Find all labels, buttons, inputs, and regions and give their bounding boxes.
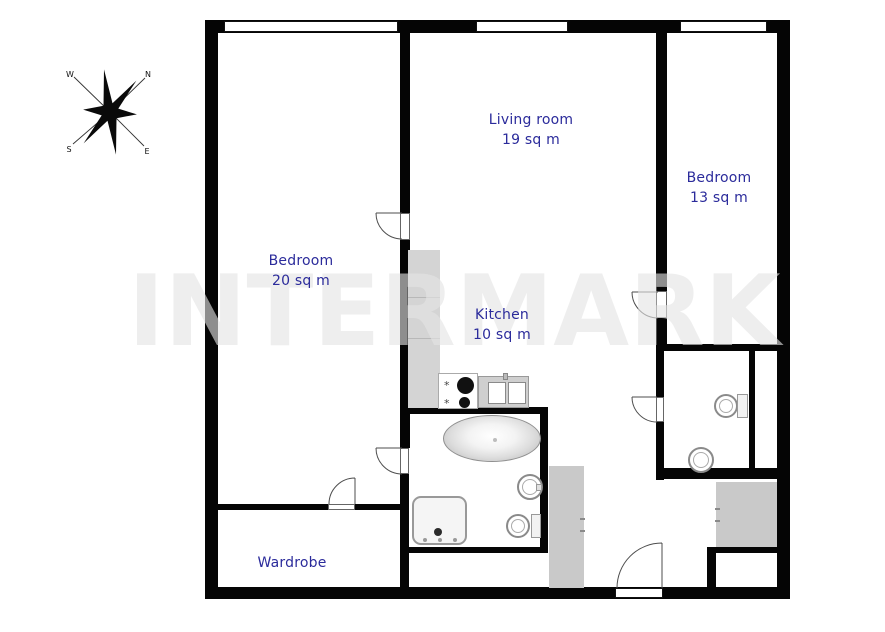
cabinet-handle <box>580 530 585 532</box>
door-swing-wc <box>632 397 657 422</box>
room-area: 10 sq m <box>473 325 531 345</box>
floor-plan: * * <box>0 0 885 632</box>
bathroom-toilet-bowl <box>506 514 530 538</box>
wall-wardrobe-top-left <box>218 504 328 510</box>
wc-sink-bowl <box>693 452 709 468</box>
bathtub <box>443 415 541 462</box>
room-label-wardrobe: Wardrobe <box>257 553 326 573</box>
sink-basin-left <box>488 382 506 404</box>
wall-bedroom13-bottom <box>656 344 790 351</box>
hall-cabinet-left <box>549 466 584 588</box>
gas-burner-icon: * <box>444 399 450 409</box>
wall-living-bedroom13-upper <box>656 33 667 291</box>
compass-label-west: W <box>66 70 74 79</box>
counter-divider <box>408 338 440 339</box>
gas-burner-icon: * <box>444 381 450 391</box>
wall-entry-niche-top <box>707 547 790 553</box>
washing-machine-valve <box>423 538 427 542</box>
sink-basin-right <box>508 382 526 404</box>
room-label-bedroom13: Bedroom 13 sq m <box>687 168 752 208</box>
window-bedroom20 <box>224 21 398 32</box>
compass-rose: W N E S <box>60 62 160 162</box>
hall-cabinet-right <box>716 482 777 547</box>
kitchen-counter <box>408 250 440 408</box>
room-area: 20 sq m <box>269 271 334 291</box>
window-livingroom <box>476 21 568 32</box>
wall-wardrobe-top-right <box>355 504 400 510</box>
bathtub-drain <box>493 438 497 442</box>
door-bedroom20-kitchen <box>400 213 410 240</box>
bathroom-toilet-inner <box>511 519 525 533</box>
wc-toilet-inner <box>719 399 733 413</box>
door-swing-bedroom20-kitchen <box>376 213 402 239</box>
door-bedroom13 <box>656 291 667 318</box>
washing-machine-dot <box>434 528 442 536</box>
kitchen-sink-unit <box>478 376 529 408</box>
wall-outer-left <box>205 20 218 599</box>
stove-burner-large <box>457 377 474 394</box>
washing-machine-valve <box>453 538 457 542</box>
door-entrance-gap <box>615 588 663 598</box>
door-swing-bedroom20-bathroom <box>376 448 402 474</box>
wall-wc-bottom <box>656 468 777 479</box>
room-name: Wardrobe <box>257 553 326 573</box>
door-wardrobe <box>328 504 355 510</box>
compass-label-north: N <box>145 70 151 79</box>
cabinet-handle <box>715 508 720 510</box>
bathroom-sink-tap <box>536 484 542 491</box>
room-label-kitchen: Kitchen 10 sq m <box>473 305 531 345</box>
stove: * * <box>438 373 478 409</box>
washing-machine <box>412 496 467 545</box>
bathroom-toilet-tank <box>531 514 541 538</box>
wc-toilet-tank <box>737 394 748 418</box>
door-wc <box>656 397 664 422</box>
wall-entry-niche-left <box>707 547 716 589</box>
wall-wc-left-upper <box>656 351 664 397</box>
sink-faucet <box>503 373 508 380</box>
wc-toilet-bowl <box>714 394 738 418</box>
wall-bathroom-bottom <box>400 547 548 553</box>
room-label-bedroom20: Bedroom 20 sq m <box>269 251 334 291</box>
room-name: Bedroom <box>687 168 752 188</box>
room-label-living: Living room 19 sq m <box>489 110 574 150</box>
counter-divider <box>408 297 440 298</box>
room-name: Kitchen <box>473 305 531 325</box>
room-area: 19 sq m <box>489 130 574 150</box>
wall-outer-bottom <box>205 587 790 599</box>
cabinet-handle <box>715 520 720 522</box>
door-swing-wardrobe <box>329 478 355 504</box>
wall-bedroom20-lower <box>400 474 409 587</box>
compass-label-south: S <box>66 145 71 154</box>
compass-arrows <box>73 77 145 146</box>
wall-outer-right <box>777 20 790 599</box>
room-name: Living room <box>489 110 574 130</box>
wall-wc-shaft-divider <box>749 351 755 473</box>
compass-label-east: E <box>144 147 149 156</box>
washing-machine-valve <box>438 538 442 542</box>
window-bedroom13 <box>680 21 767 32</box>
room-area: 13 sq m <box>687 188 752 208</box>
compass-star <box>83 69 137 154</box>
door-swing-entrance <box>617 543 662 588</box>
wc-sink <box>688 447 714 473</box>
cabinet-handle <box>580 518 585 520</box>
door-bedroom20-bathroom <box>400 448 409 474</box>
wall-bedroom20-upper <box>400 33 410 213</box>
door-swing-bedroom13 <box>632 292 658 318</box>
stove-burner-small <box>459 397 470 408</box>
room-name: Bedroom <box>269 251 334 271</box>
